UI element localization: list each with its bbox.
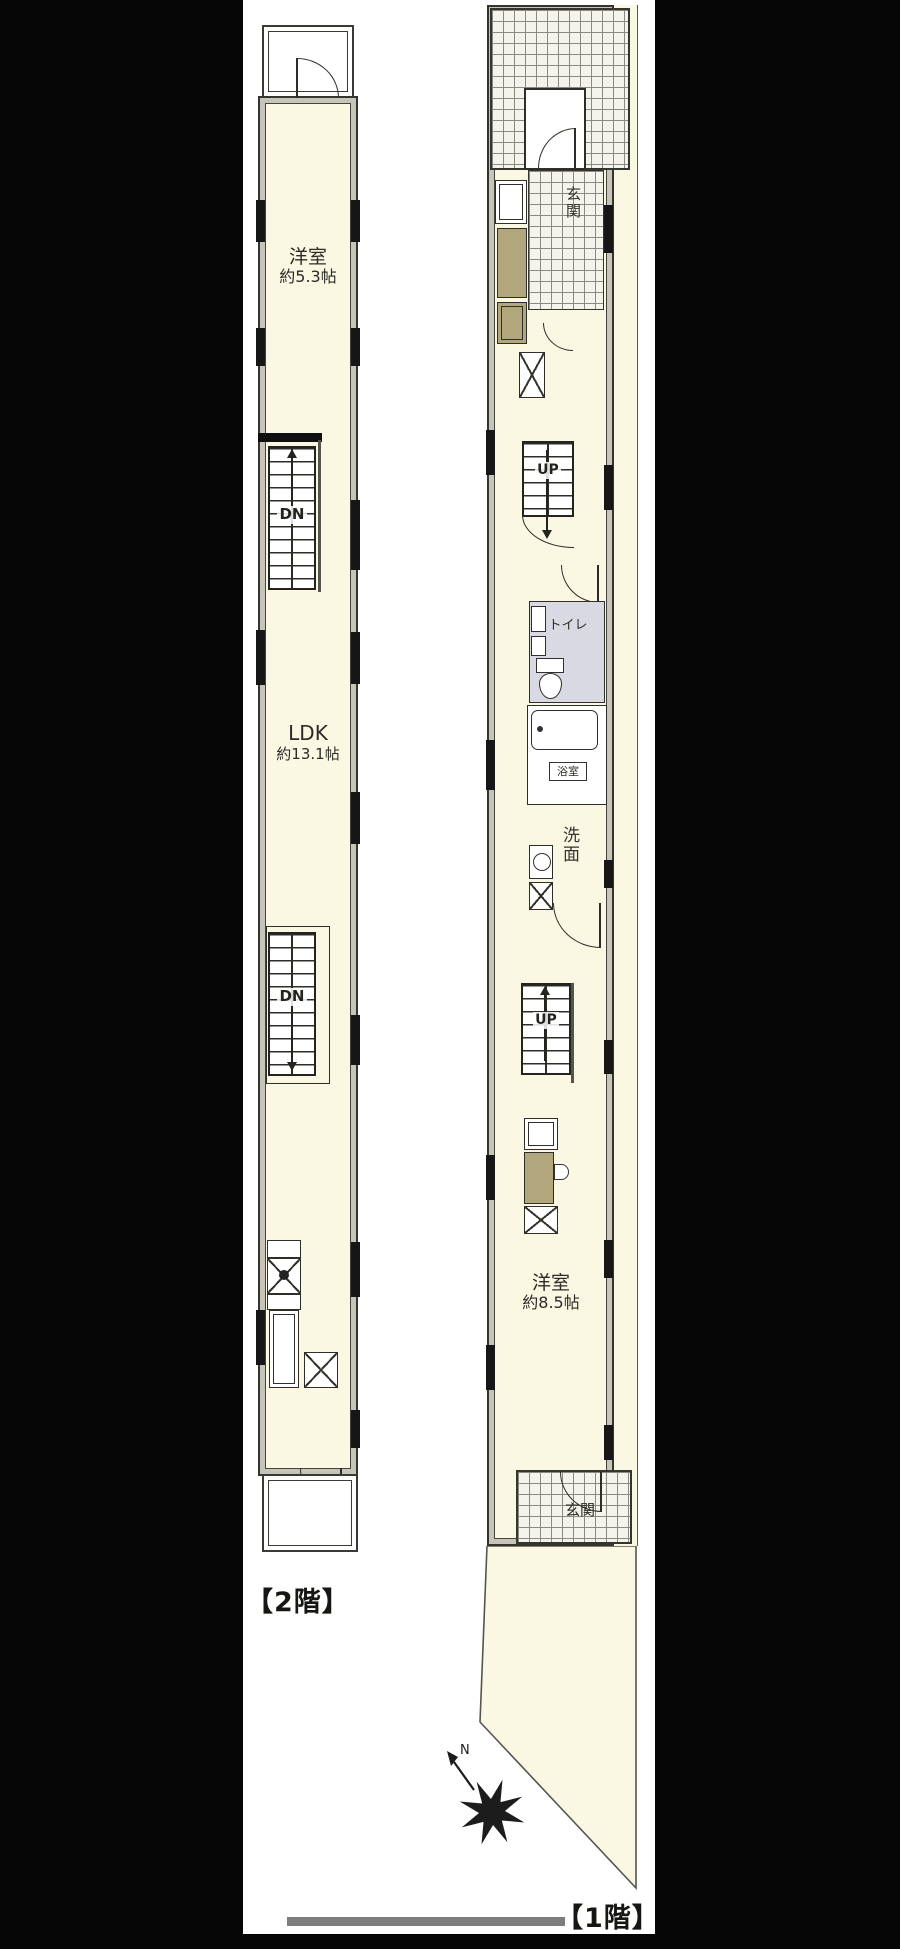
stove-burner-icon [279,1270,289,1280]
kitchen-counter [267,1294,301,1310]
refrigerator-space-icon [304,1352,338,1388]
door-leaf [574,128,576,168]
window-mark [351,328,360,366]
stair-label: DN [268,988,316,1006]
toilet-label: トイレ [537,618,599,633]
bath-label-text: 浴室 [557,765,579,778]
kitchen-counter [267,1240,301,1258]
window-mark [256,328,265,366]
bathtub-drain-icon [537,726,543,732]
window-mark [351,1410,360,1448]
washroom-fixture [529,882,553,910]
room-label-yoshitsu-1f: 洋室 約8.5帖 [501,1272,601,1313]
window-mark [256,200,265,242]
staircase-up-upper [522,441,574,517]
room-size: 約13.1帖 [266,746,350,764]
balcony-bottom [262,1474,358,1552]
storage-shelf [519,352,545,398]
washroom-label: 洗面 [556,826,582,906]
interior-wall [318,440,321,592]
window-mark [256,1310,265,1365]
door-leaf [599,903,601,948]
floor2-caption: 【2階】 [246,1580,386,1619]
room-size: 約8.5帖 [501,1294,601,1313]
stair-label-text: UP [535,462,561,479]
stair-label-text: DN [277,988,306,1006]
window-mark [351,632,360,684]
cabinet-knob [554,1164,569,1180]
window-mark [486,430,495,475]
washing-machine [529,845,553,879]
kitchen-sink [269,1310,299,1388]
window-mark [604,1240,613,1278]
entrance-label-top: 玄関 [560,186,584,252]
toilet-fixture [531,636,546,656]
cabinet [497,228,527,298]
window-mark [486,1155,495,1200]
stair-label: UP [522,462,574,479]
room-name: 洋室 [266,246,350,268]
window-mark [351,200,360,242]
floorplan-screenshot: 洋室 約5.3帖 DN LDK 約13.1帖 DN [0,0,900,1949]
staircase-up-lower [521,983,571,1075]
room-label-ldk: LDK 約13.1帖 [266,722,350,763]
window-mark [604,860,613,888]
room-label-yoshitsu-2f: 洋室 約5.3帖 [266,246,350,287]
window-mark [604,205,613,253]
stair-label-text: DN [277,506,306,524]
window-mark [351,792,360,844]
door-leaf [296,58,298,98]
floor1-caption: 【1階】 [556,1896,696,1935]
window-mark [256,630,265,685]
room-name: 洋室 [501,1272,601,1294]
window-mark [486,1345,495,1390]
stair-label: UP [521,1012,571,1029]
window-mark [351,500,360,570]
scrollbar-thumb[interactable] [287,1917,565,1926]
entrance-label-text: 玄関 [565,1501,595,1519]
north-label: N [460,1743,470,1758]
window-mark [351,1242,360,1297]
cabinet [497,302,527,344]
window-mark [486,740,495,790]
room-name: LDK [266,722,350,746]
entrance-label-bottom: 玄関 [548,1502,612,1520]
window-mark [604,465,613,510]
vanity-cabinet [524,1152,554,1204]
stair-enclosure [571,983,574,1083]
compass-rose: N [430,1740,564,1860]
bath-label: 浴室 [549,762,587,781]
door-leaf [597,565,599,603]
stair-label-text: UP [533,1012,559,1029]
compass-star-icon [449,1769,535,1855]
toilet-label-text: トイレ [548,618,587,633]
vanity-cabinet [524,1206,558,1234]
interior-wall [258,433,322,442]
stair-label: DN [268,506,316,524]
window-mark [604,1425,613,1460]
vanity-cabinet [524,1118,558,1150]
window-mark [351,1015,360,1065]
toilet-tank [536,658,564,673]
window-mark [604,1040,613,1074]
lot-strip [610,5,638,1546]
room-size: 約5.3帖 [266,268,350,287]
stair-direction-arrow [291,458,293,510]
shoe-cabinet [495,180,527,224]
